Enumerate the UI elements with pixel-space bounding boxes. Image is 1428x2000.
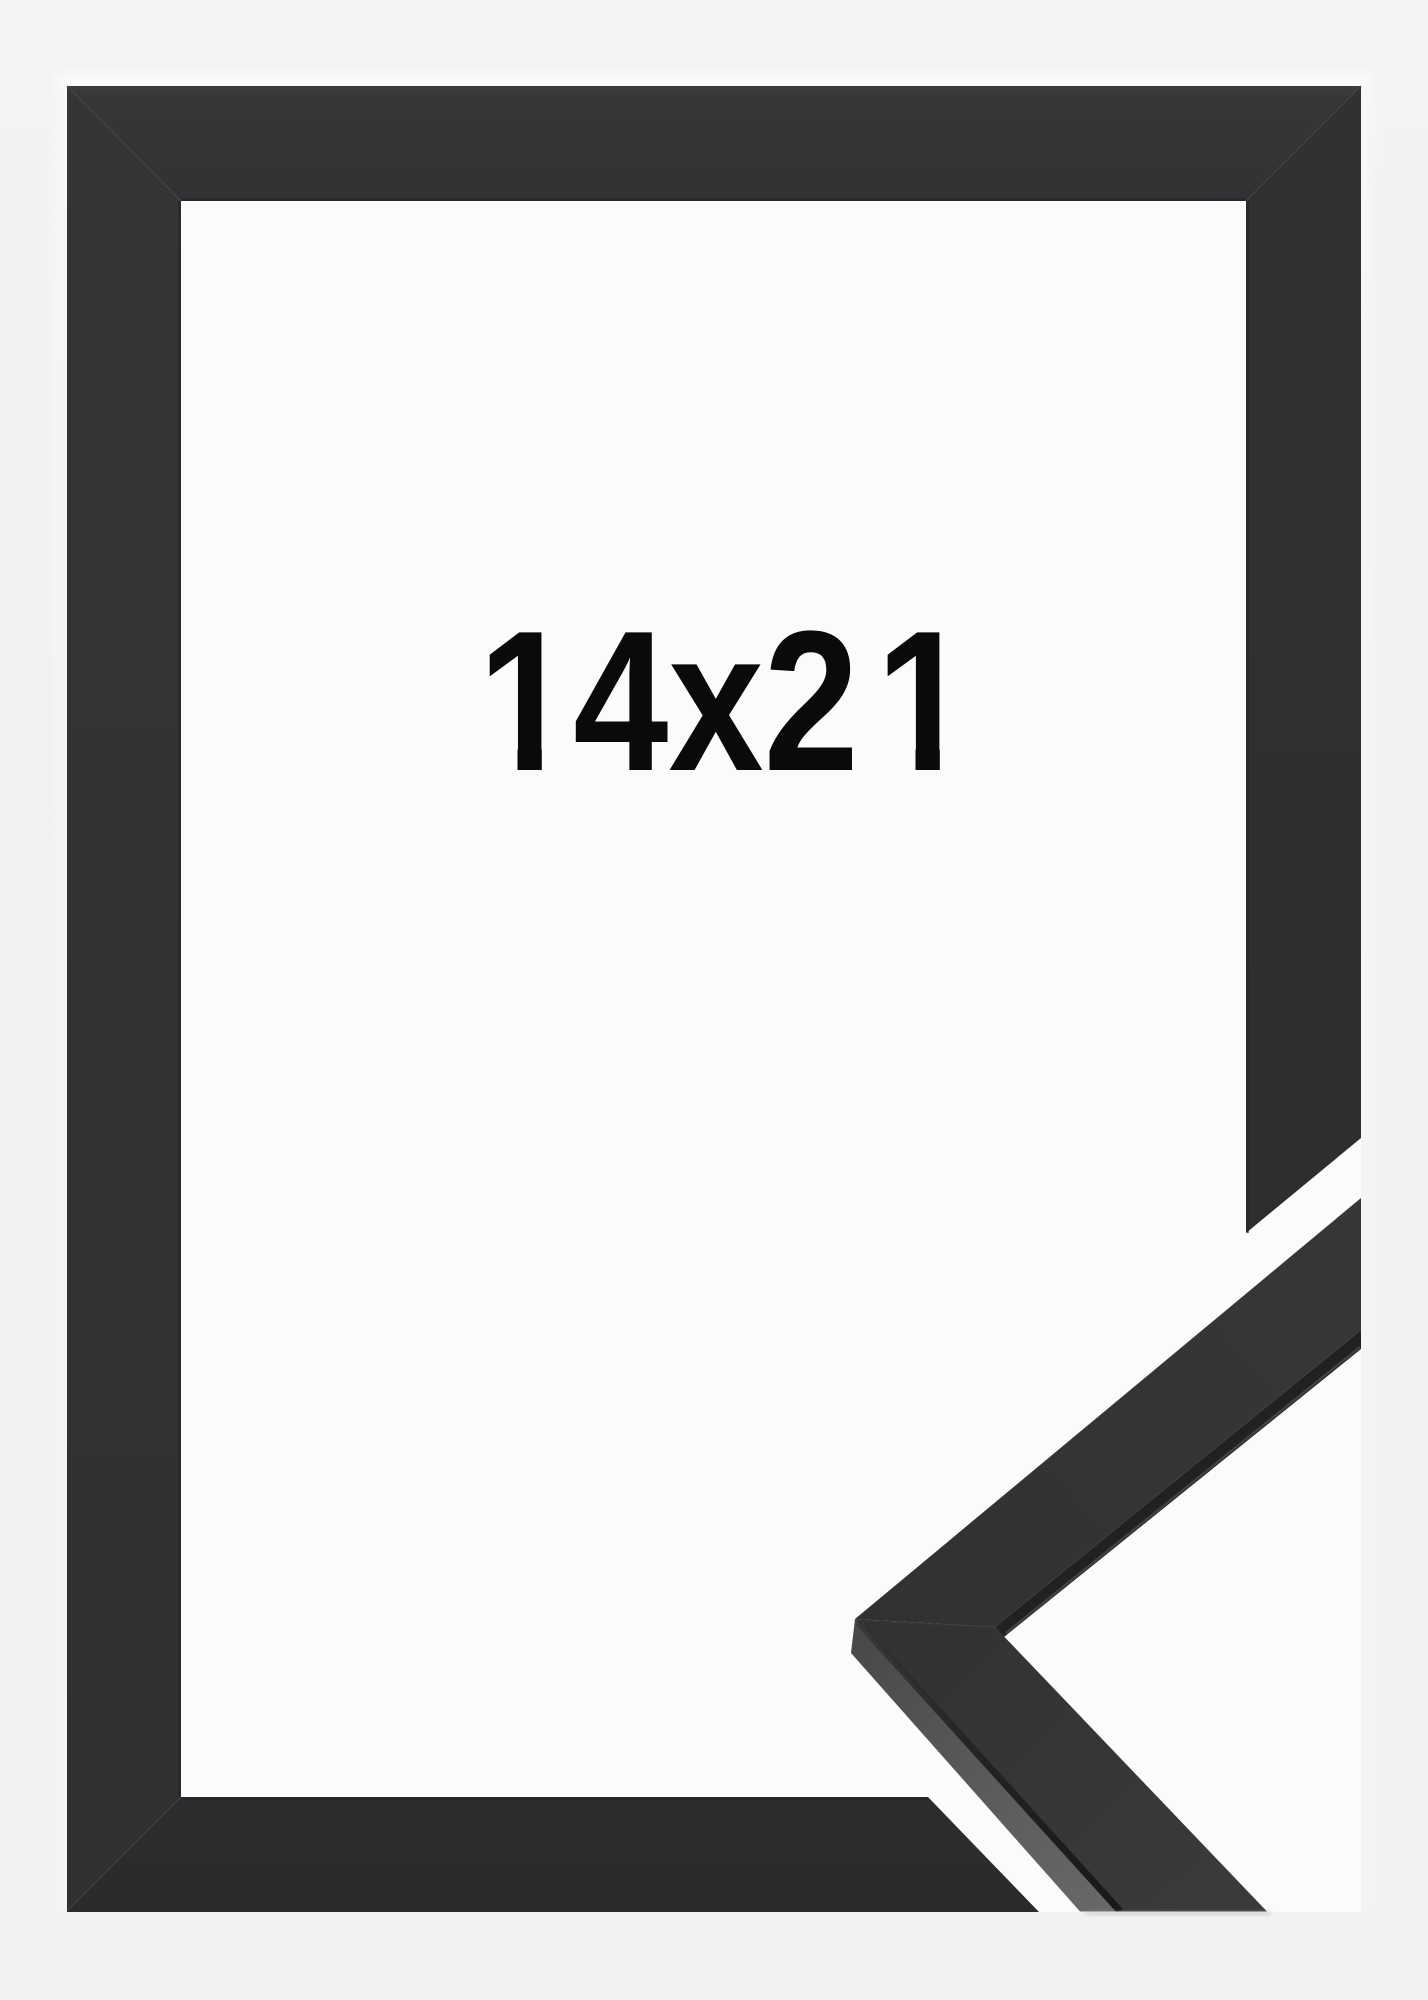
svg-text:14x21: 14x21	[478, 590, 971, 813]
